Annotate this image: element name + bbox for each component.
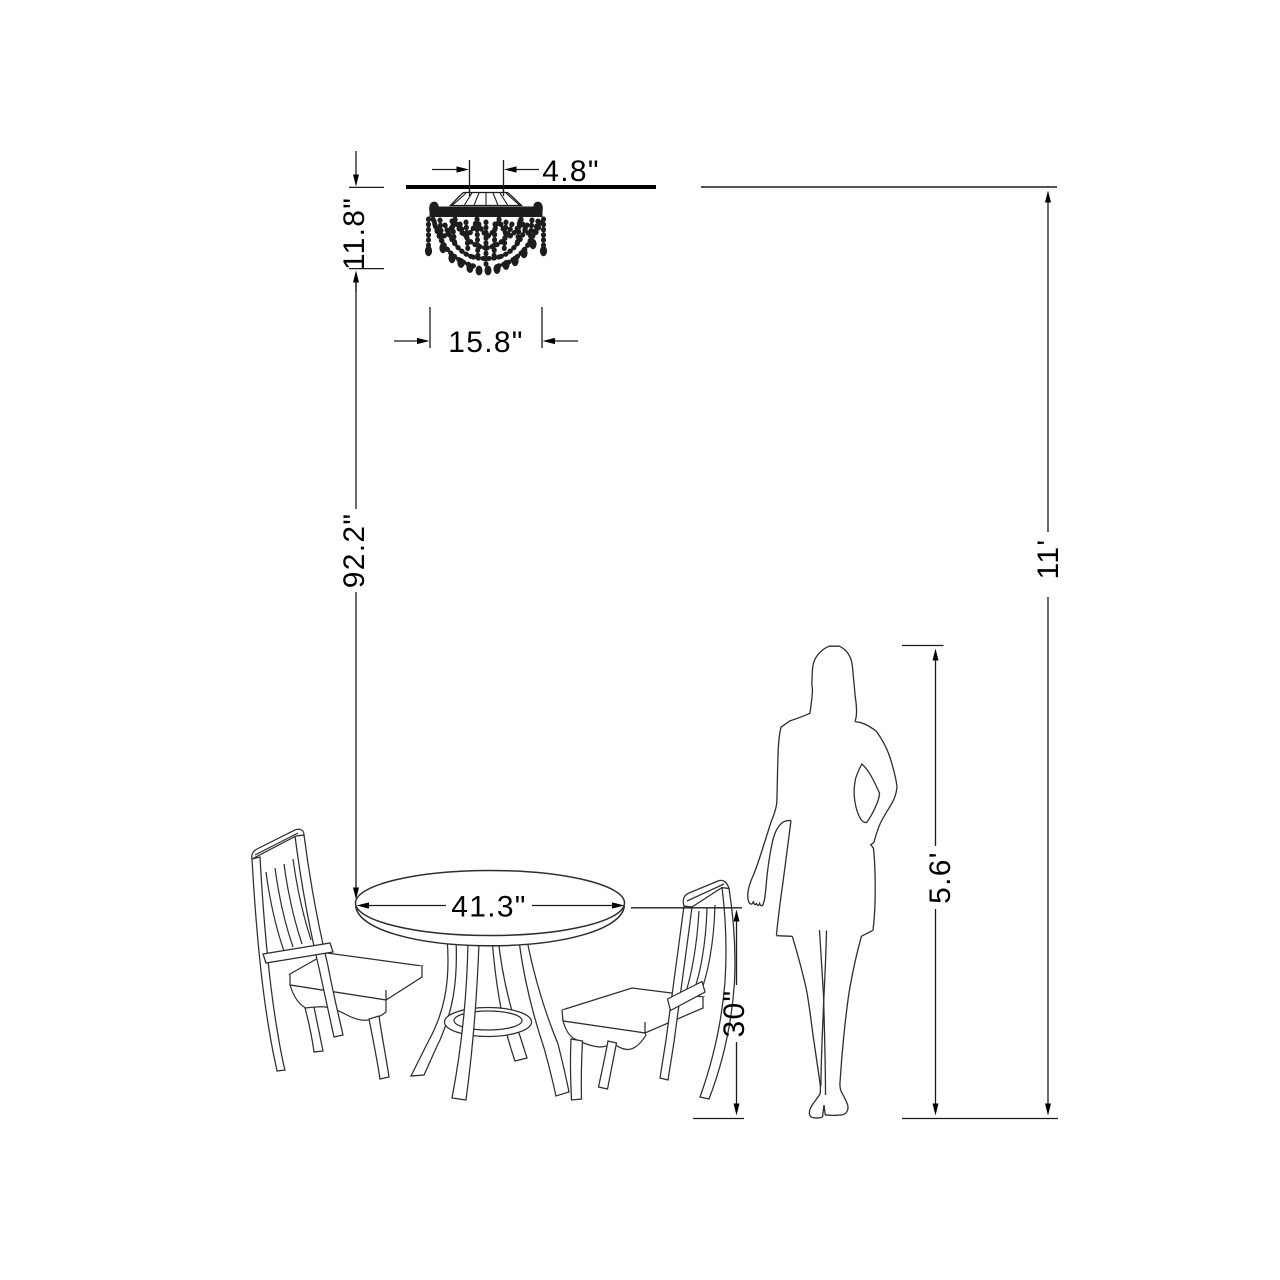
svg-text:11.8": 11.8" <box>338 197 371 270</box>
svg-text:4.8": 4.8" <box>542 155 600 188</box>
svg-text:15.8": 15.8" <box>448 326 524 359</box>
svg-text:30": 30" <box>718 990 751 1038</box>
svg-text:92.2": 92.2" <box>338 513 371 589</box>
svg-text:11': 11' <box>1032 539 1065 580</box>
svg-text:41.3": 41.3" <box>451 891 527 924</box>
svg-text:5.6': 5.6' <box>924 851 957 904</box>
